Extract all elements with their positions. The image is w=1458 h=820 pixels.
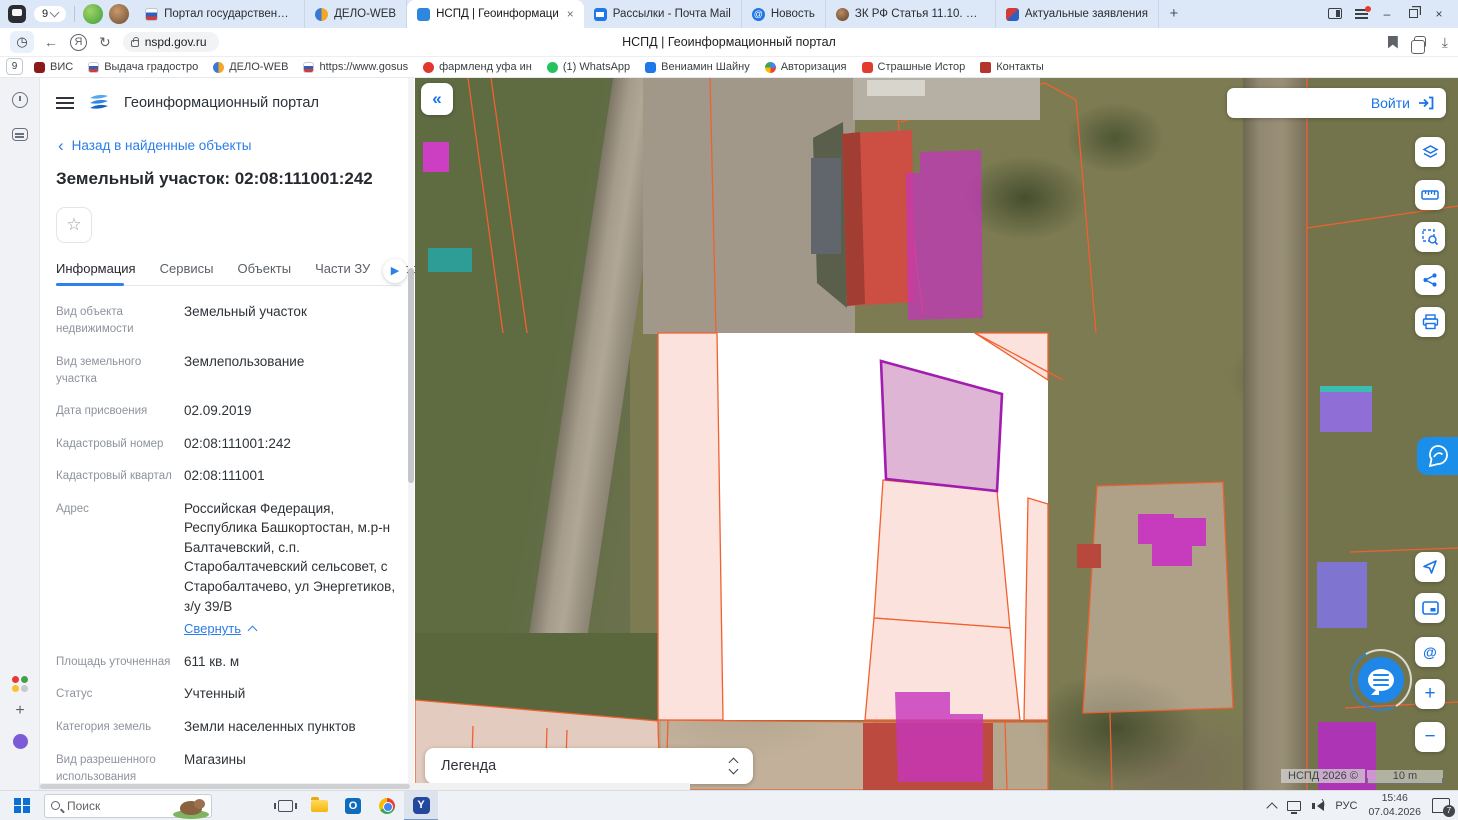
collapse-address-link[interactable]: Свернуть (184, 620, 256, 639)
field-row: Дата присвоения02.09.2019 (56, 401, 401, 421)
clock-widget[interactable]: 15:4607.04.2026 (1368, 792, 1421, 818)
outlook-button[interactable]: O (336, 791, 370, 820)
bookmarks-bar: 9 ВИС Выдача градостро ДЕЛО-WEB https://… (0, 57, 1458, 78)
feedback-sketch-button[interactable] (1417, 437, 1458, 475)
bookmark-favicon (88, 62, 99, 73)
outlook-icon: O (345, 798, 361, 814)
chrome-icon (379, 798, 395, 814)
sidebar-messenger-button[interactable] (0, 128, 40, 141)
close-window-button[interactable]: × (1426, 4, 1452, 24)
time: 15:46 (1382, 792, 1408, 804)
gray-building (811, 158, 841, 254)
tray-expand-icon[interactable] (1267, 802, 1278, 813)
marmot-doodle[interactable] (173, 793, 209, 819)
apps-grid-icon (12, 676, 28, 692)
shed-roof (867, 80, 925, 96)
sidebar-services-button[interactable] (0, 676, 40, 692)
address-bar: ◷ ← Я ↻ nspd.gov.ru НСПД | Геоинформацио… (0, 28, 1458, 57)
chat-assistant-button[interactable] (1358, 657, 1404, 703)
tab-portal-gos[interactable]: Портал государственных (135, 0, 305, 28)
tabs-overflow-button[interactable]: ▶ (383, 259, 407, 283)
overview-map-icon (1422, 601, 1439, 615)
bookmark-gosuslugi[interactable]: https://www.gosus (303, 61, 408, 73)
bookmark-icon[interactable] (1388, 36, 1398, 49)
page-title: НСПД | Геоинформационный портал (0, 35, 1458, 49)
map-copyright: НСПД 2026 © (1281, 769, 1365, 783)
parcel-polygon[interactable] (1024, 498, 1048, 720)
field-row-address: Адрес Российская Федерация, Республика Б… (56, 499, 401, 639)
tab-zk-rf[interactable]: ЗК РФ Статья 11.10. Схема (826, 0, 996, 28)
ruler-icon (1421, 189, 1439, 201)
bookmark-favicon (34, 62, 45, 73)
measure-button[interactable] (1415, 180, 1445, 210)
tab-nspd-active[interactable]: НСПД | Геоинформаци× (407, 0, 584, 28)
geo-search-button[interactable]: @ (1415, 637, 1445, 667)
sketch-pin-icon (1427, 445, 1449, 467)
bookmark-strashnye[interactable]: Страшные Истор (862, 61, 966, 73)
tab-group-count: 9 (42, 8, 48, 20)
back-button[interactable]: ← (44, 34, 58, 50)
small-red-house (1077, 544, 1101, 568)
print-button[interactable] (1415, 307, 1445, 337)
divider (74, 6, 75, 22)
legend-label: Легенда (441, 758, 496, 774)
cadastral-overlay (415, 78, 1458, 790)
yandex-button[interactable]: Я (70, 34, 87, 51)
field-row: Кадастровый квартал02:08:111001 (56, 466, 401, 486)
bookmark-favicon (980, 62, 991, 73)
network-icon[interactable] (1287, 801, 1301, 811)
tab-servisy[interactable]: Сервисы (160, 261, 214, 276)
field-row: Вид разрешенного использованияМагазины (56, 750, 401, 787)
browser-window: 9 Портал государственных ДЕЛО-WEB НСПД |… (0, 0, 1458, 820)
taskbar-search-input[interactable]: Поиск (44, 794, 212, 818)
field-row: СтатусУчтенный (56, 684, 401, 704)
date: 07.04.2026 (1368, 806, 1421, 818)
oks-building-polygon[interactable] (423, 142, 449, 172)
sidebar-group-count[interactable]: 9 (6, 58, 23, 75)
zoom-in-button[interactable]: + (1415, 679, 1445, 709)
history-button[interactable]: ◷ (10, 31, 34, 53)
reload-button[interactable]: ↻ (99, 34, 111, 51)
violet-building-edge (1320, 386, 1372, 392)
tab-group-pill[interactable]: 9 (34, 6, 66, 22)
close-tab-icon[interactable]: × (567, 7, 574, 21)
legend-bar[interactable]: Легенда (425, 748, 753, 784)
share-icon (1422, 272, 1438, 288)
field-row: Вид земельного участкаЗемлепользование (56, 352, 401, 389)
scrollbar-thumb[interactable] (40, 784, 410, 789)
url-field[interactable]: nspd.gov.ru (123, 32, 219, 52)
field-row: Категория земельЗемли населенных пунктов (56, 717, 401, 737)
field-row: Вид объекта недвижимостиЗемельный участо… (56, 302, 401, 339)
collections-icon[interactable] (1414, 36, 1426, 48)
locate-button[interactable] (1415, 552, 1445, 582)
violet-building (1320, 386, 1372, 432)
browser-menu-button[interactable] (1348, 4, 1374, 24)
collapse-panel-button[interactable]: « (421, 83, 453, 115)
russia-flag-favicon (145, 8, 158, 21)
parcel-polygon[interactable] (874, 480, 1010, 628)
bookmark-vis[interactable]: ВИС (34, 61, 73, 73)
panel-scrollbar[interactable] (408, 78, 414, 790)
mail-favicon (594, 8, 607, 21)
parcel-polygon[interactable] (658, 333, 723, 720)
map-viewport[interactable]: « Войти @ + − Легенда НСПД 2026 © 10 m (415, 78, 1458, 790)
sidebar-history-button[interactable] (0, 92, 40, 108)
windows-taskbar: Поиск O Y РУС 15:4607.04.2026 7 (0, 790, 1458, 820)
bookmark-favicon (213, 62, 224, 73)
chevron-left-icon: ‹ (58, 140, 64, 152)
zoom-out-button[interactable]: − (1415, 722, 1445, 752)
login-icon (1418, 96, 1434, 110)
bookmark-kontakty[interactable]: Контакты (980, 61, 1044, 73)
sidebar-add-button[interactable]: + (0, 702, 40, 720)
task-view-icon (278, 800, 293, 812)
search-icon (51, 801, 60, 810)
portal-logo (86, 90, 112, 116)
attributes-list: Вид объекта недвижимостиЗемельный участо… (56, 302, 401, 790)
login-button[interactable]: Войти (1227, 88, 1446, 118)
chat-icon (12, 128, 28, 141)
back-to-results-link[interactable]: ‹Назад в найденные объекты (58, 138, 401, 153)
bookmark-favicon (862, 62, 873, 73)
select-area-icon (1421, 228, 1439, 246)
layers-button[interactable] (1415, 137, 1445, 167)
tab-zayavleniya[interactable]: Актуальные заявления (996, 0, 1159, 28)
tab-mail[interactable]: Рассылки - Почта Mail (584, 0, 742, 28)
delo-web-favicon (315, 8, 328, 21)
share-button[interactable] (1415, 265, 1445, 295)
yandex-browser-icon: Y (413, 797, 430, 814)
avatar (13, 734, 28, 749)
chevron-up-icon (248, 626, 258, 636)
volume-icon[interactable] (1312, 801, 1324, 811)
notification-badge: 7 (1443, 805, 1455, 817)
start-button[interactable] (0, 791, 44, 820)
windows-logo-icon (14, 798, 30, 814)
chevron-down-icon (50, 8, 60, 18)
printer-icon (1422, 314, 1439, 330)
bookmark-favicon (303, 62, 314, 73)
side-panel-icon (1328, 8, 1342, 19)
teal-roof-building (428, 248, 472, 272)
object-info-panel: Геоинформационный портал ‹Назад в найден… (40, 78, 415, 790)
bookmark-favicon (765, 62, 776, 73)
new-tab-button[interactable]: + (1163, 3, 1185, 25)
panel-tabs: Информация Сервисы Объекты Части ЗУ Сост… (56, 261, 401, 286)
nspd-favicon (417, 8, 430, 21)
layers-icon (1422, 144, 1439, 161)
file-explorer-button[interactable] (302, 791, 336, 820)
violet-building-2 (1317, 562, 1367, 628)
horizontal-scrollbar[interactable] (40, 783, 690, 790)
area-select-button[interactable] (1415, 222, 1445, 252)
bookmark-avtorizaciya[interactable]: Авторизация (765, 61, 847, 73)
download-icon[interactable]: ⤓ (1442, 34, 1448, 51)
hamburger-menu-icon[interactable] (56, 97, 74, 99)
sidebar-profile-button[interactable] (0, 734, 40, 749)
bookmark-whatsapp[interactable]: (1) WhatsApp (547, 61, 630, 73)
notification-center-button[interactable]: 7 (1432, 798, 1450, 813)
at-favicon: @ (752, 8, 765, 21)
tab-novost[interactable]: @Новость (742, 0, 826, 28)
tab-obekty[interactable]: Объекты (237, 261, 291, 276)
lock-icon (131, 40, 139, 47)
notification-dot (1365, 6, 1371, 12)
url-text: nspd.gov.ru (145, 35, 207, 49)
folder-icon (311, 800, 328, 812)
akt-favicon (1006, 8, 1019, 21)
minimize-button[interactable]: – (1374, 4, 1400, 24)
field-row: Площадь уточненная611 кв. м (56, 652, 401, 672)
scrollbar-thumb[interactable] (408, 268, 414, 483)
tab-delo-web[interactable]: ДЕЛО-WEB (305, 0, 407, 28)
favorite-star-button[interactable]: ☆ (56, 207, 92, 243)
chrome-button[interactable] (370, 791, 404, 820)
bookmark-favicon (547, 62, 558, 73)
parcel-title: Земельный участок: 02:08:111001:242 (56, 169, 401, 189)
minimap-button[interactable] (1415, 593, 1445, 623)
task-view-button[interactable] (268, 791, 302, 820)
language-indicator[interactable]: РУС (1335, 800, 1357, 812)
speech-bubble-icon (1368, 669, 1394, 691)
restore-button[interactable] (1400, 4, 1426, 24)
browser-logo-icon[interactable] (8, 5, 26, 23)
field-row: Кадастровый номер02:08:111001:242 (56, 434, 401, 454)
clock-icon (12, 92, 28, 108)
bookmark-farmlend[interactable]: фармленд уфа ин (423, 61, 532, 73)
browser-tab-strip: 9 Портал государственных ДЕЛО-WEB НСПД |… (0, 0, 1458, 28)
pinned-tab-icon[interactable] (83, 4, 103, 24)
app-title: Геоинформационный портал (124, 95, 319, 111)
bookmark-veniamin[interactable]: Вениамин Шайну (645, 61, 750, 73)
yandex-browser-button[interactable]: Y (404, 791, 438, 820)
bookmark-vydacha[interactable]: Выдача градостро (88, 61, 198, 73)
bookmark-favicon (423, 62, 434, 73)
search-placeholder: Поиск (67, 799, 100, 813)
side-panel-button[interactable] (1322, 4, 1348, 24)
browser-sidebar: + (0, 78, 40, 790)
scale-bar: 10 m (1367, 770, 1443, 784)
navigation-arrow-icon (1422, 559, 1438, 575)
bookmark-favicon (645, 62, 656, 73)
expand-collapse-icon (730, 759, 737, 773)
bookmark-delo[interactable]: ДЕЛО-WEB (213, 61, 288, 73)
oks-building-polygon[interactable] (906, 150, 983, 320)
tab-informaciya[interactable]: Информация (56, 261, 136, 276)
restore-icon (1409, 9, 1418, 18)
zk-favicon (836, 8, 849, 21)
tab-chasti-zu[interactable]: Части ЗУ (315, 261, 370, 276)
pinned-tab-avatar-icon[interactable] (109, 4, 129, 24)
